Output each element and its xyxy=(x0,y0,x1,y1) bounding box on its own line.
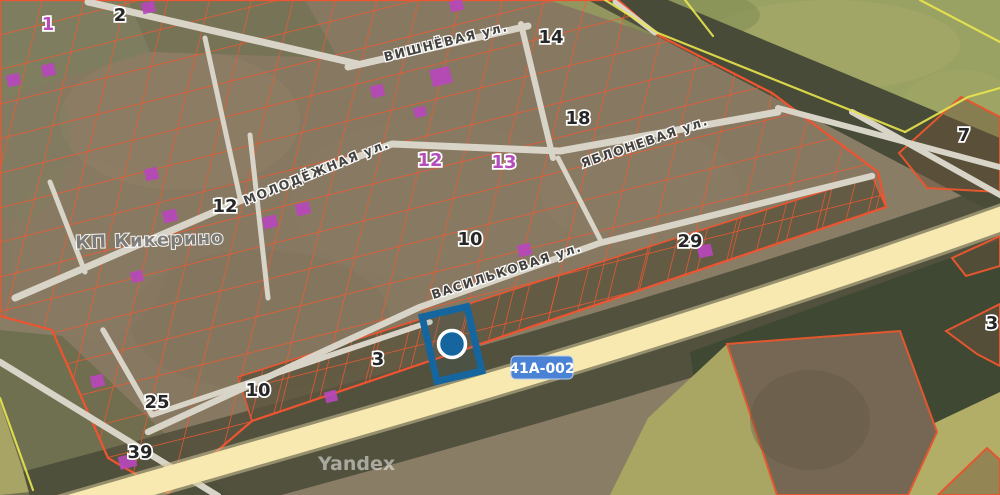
selected-parcel[interactable] xyxy=(422,307,482,382)
parcel-number: 1 xyxy=(42,14,55,35)
parcel-number: 7 xyxy=(958,125,971,146)
map-watermark: Yandex xyxy=(317,453,395,475)
map-canvas[interactable]: ВИШНЁВАЯ ул. МОЛОДЁЖНАЯ ул. ЯБЛОНЕВАЯ ул… xyxy=(0,0,1000,495)
parcel-number: 14 xyxy=(538,27,563,48)
selection-marker-icon[interactable] xyxy=(439,331,466,358)
parcel-number: 39 xyxy=(127,442,152,463)
parcel-number: 10 xyxy=(245,380,270,401)
parcel-number: 25 xyxy=(144,392,169,413)
parcel-number: 3 xyxy=(986,313,999,334)
parcel-number: 13 xyxy=(491,152,516,173)
map-viewport[interactable]: ВИШНЁВАЯ ул. МОЛОДЁЖНАЯ ул. ЯБЛОНЕВАЯ ул… xyxy=(0,0,1000,495)
parcel-number: 10 xyxy=(457,229,482,250)
parcel-number: 2 xyxy=(114,5,127,26)
route-badge-text: 41А-002 xyxy=(509,361,574,377)
parcel-number: 12 xyxy=(212,196,237,217)
parcel-number: 29 xyxy=(677,231,702,252)
parcel-number: 18 xyxy=(565,108,590,129)
route-badge: 41А-002 xyxy=(509,356,574,379)
parcel-number: 3 xyxy=(372,349,385,370)
parcel-number: 12 xyxy=(417,150,442,171)
